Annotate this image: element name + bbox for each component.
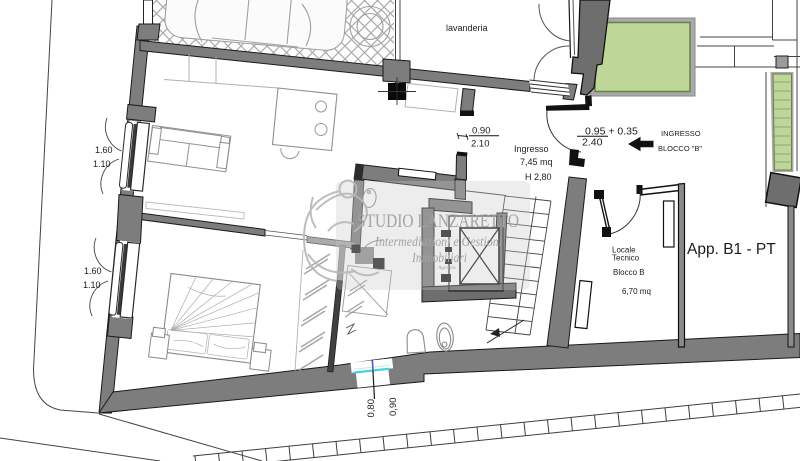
svg-text:2.10: 2.10 bbox=[471, 139, 490, 150]
svg-text:0,80: 0,80 bbox=[366, 399, 377, 418]
svg-text:1.10: 1.10 bbox=[93, 159, 111, 169]
svg-text:Tecnico: Tecnico bbox=[612, 254, 640, 263]
svg-text:STUDIO LANZARETTO: STUDIO LANZARETTO bbox=[357, 211, 519, 232]
svg-text:H 2,80: H 2,80 bbox=[525, 172, 552, 182]
svg-text:1.60: 1.60 bbox=[84, 266, 102, 276]
svg-text:Blocco B: Blocco B bbox=[613, 268, 645, 277]
svg-text:Ingresso: Ingresso bbox=[514, 144, 549, 154]
svg-text:lavanderia: lavanderia bbox=[446, 23, 488, 33]
svg-text:Agenzia: Agenzia bbox=[437, 265, 456, 271]
svg-text:7,45 mq: 7,45 mq bbox=[520, 157, 553, 167]
svg-text:BLOCCO "B": BLOCCO "B" bbox=[658, 144, 702, 153]
svg-text:6,70 mq: 6,70 mq bbox=[622, 287, 651, 296]
svg-text:Intermediazioni e Gestioni: Intermediazioni e Gestioni bbox=[374, 234, 502, 249]
svg-text:INGRESSO: INGRESSO bbox=[661, 129, 701, 138]
svg-text:1.10: 1.10 bbox=[83, 280, 101, 290]
svg-text:App. B1 - PT: App. B1 - PT bbox=[687, 241, 776, 258]
svg-text:2.40: 2.40 bbox=[582, 137, 603, 149]
svg-text:0,90: 0,90 bbox=[388, 398, 399, 417]
svg-text:1.60: 1.60 bbox=[95, 145, 113, 155]
svg-text:Immobiliari: Immobiliari bbox=[411, 250, 467, 265]
svg-text:0.90: 0.90 bbox=[472, 126, 491, 137]
